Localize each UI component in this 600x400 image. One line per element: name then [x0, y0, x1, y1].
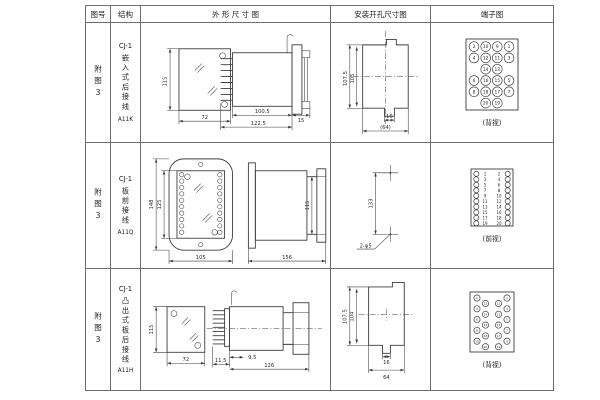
svg-text:11: 11 — [482, 199, 488, 204]
svg-text:2: 2 — [476, 296, 478, 300]
svg-text:10: 10 — [496, 193, 502, 198]
svg-text:18: 18 — [484, 333, 488, 337]
svg-text:10: 10 — [475, 339, 479, 343]
drill-holes: 133 2-φ5 — [357, 165, 399, 250]
svg-text:15: 15 — [495, 78, 501, 84]
svg-text:100.5: 100.5 — [255, 109, 270, 115]
side-view: 9.5 11.5 126 — [207, 291, 322, 372]
outline-diagram-cell: 148 125 105 115 — [141, 143, 331, 269]
header-figure-no: 图号 — [86, 6, 111, 23]
figure-no-cell: 附图3 — [86, 23, 111, 143]
svg-text:5: 5 — [506, 317, 508, 321]
glass-hatch-icon — [190, 333, 198, 341]
svg-text:72: 72 — [201, 115, 208, 121]
svg-text:20: 20 — [496, 221, 502, 226]
svg-text:17: 17 — [482, 215, 488, 220]
header-terminal: 端子图 — [431, 6, 554, 23]
svg-text:4: 4 — [473, 55, 476, 61]
terminal-zigzag: 2468101214161820111315171913579 — [474, 294, 510, 349]
svg-text:122.5: 122.5 — [251, 121, 266, 127]
svg-text:1: 1 — [508, 44, 511, 50]
svg-text:6: 6 — [473, 78, 476, 84]
svg-text:16: 16 — [386, 114, 393, 120]
terminal-view-label: (前视) — [483, 233, 502, 243]
svg-text:7: 7 — [508, 89, 511, 95]
svg-text:5: 5 — [508, 78, 511, 84]
svg-text:115: 115 — [163, 76, 169, 86]
glass-hatch-icon — [208, 86, 217, 95]
svg-text:8: 8 — [498, 188, 501, 193]
wiring-type-label: 板前接线 — [121, 187, 131, 226]
svg-text:2: 2 — [498, 171, 501, 176]
wiring-type-label: 嵌入式后接线 — [121, 54, 131, 112]
header-outline-dims: 外 形 尺 寸 图 — [141, 6, 331, 23]
svg-text:18: 18 — [496, 215, 502, 220]
terminal-diagram-cell: 2109141211314136161558181772019 (背视) — [431, 23, 554, 143]
hook-icon — [232, 291, 237, 305]
svg-text:9.5: 9.5 — [248, 355, 256, 361]
svg-text:3: 3 — [506, 306, 508, 310]
side-view: 100.5 15 122.5 — [221, 35, 310, 130]
outline-drawing-a11h: 115 72 9.5 — [141, 269, 330, 390]
terminal-drawing-a11q: 1234567891011121314151617181920 — [470, 168, 514, 227]
terminal-strip: 1234567891011121314151617181920 — [474, 171, 511, 226]
glass-hatch-icon — [203, 213, 212, 222]
svg-text:2-φ5: 2-φ5 — [360, 244, 372, 250]
svg-text:19: 19 — [482, 221, 488, 226]
svg-text:7: 7 — [506, 328, 508, 332]
svg-text:64: 64 — [383, 375, 390, 381]
svg-text:14: 14 — [484, 312, 488, 316]
svg-text:20: 20 — [484, 344, 488, 348]
svg-text:15: 15 — [482, 210, 488, 215]
figure-no-label: 附图3 — [93, 65, 104, 101]
structure-cell: CJ-1 板前接线 A11Q — [111, 143, 141, 269]
mounting-drawing-a11q: 133 2-φ5 — [331, 143, 430, 268]
terminal-drawing-a11h: 2468101214161820111315171913579 — [469, 291, 515, 353]
svg-text:14: 14 — [496, 204, 502, 209]
terminal-diagram-cell: 2468101214161820111315171913579 (背视) — [431, 269, 554, 391]
svg-text:8: 8 — [476, 328, 478, 332]
svg-text:16: 16 — [496, 210, 502, 215]
model-label: CJ-1 — [119, 175, 132, 183]
svg-text:7: 7 — [484, 188, 487, 193]
mounting-diagram-cell: 107.5 105 16 (64) — [331, 23, 431, 143]
model-label: CJ-1 — [119, 42, 132, 50]
hole-cross-marks — [382, 165, 398, 242]
svg-text:8: 8 — [473, 89, 476, 95]
svg-text:11: 11 — [495, 55, 501, 61]
svg-text:115: 115 — [149, 324, 155, 334]
terminal-diagram-cell: 1234567891011121314151617181920 (前视) — [431, 143, 554, 269]
svg-text:9: 9 — [484, 193, 487, 198]
svg-text:19: 19 — [495, 101, 501, 107]
svg-text:17: 17 — [495, 89, 501, 95]
svg-text:15: 15 — [497, 323, 501, 327]
svg-text:4: 4 — [498, 177, 501, 182]
svg-text:9: 9 — [506, 339, 508, 343]
svg-text:19: 19 — [497, 344, 501, 348]
structure-cell: CJ-1 凸出式板后接线 A11H — [111, 269, 141, 391]
svg-text:13: 13 — [482, 204, 488, 209]
terminal-view-label: (背视) — [483, 359, 502, 369]
svg-text:11.5: 11.5 — [215, 358, 227, 364]
mounting-diagram-cell: 133 2-φ5 — [331, 143, 431, 269]
svg-text:12: 12 — [484, 301, 488, 305]
svg-text:148: 148 — [149, 199, 155, 209]
svg-text:16: 16 — [484, 323, 488, 327]
svg-text:107.5: 107.5 — [343, 309, 349, 324]
outline-diagram-cell: 115 72 9.5 — [141, 269, 331, 391]
spec-table: 图号 结构 外 形 尺 寸 图 安装开孔尺寸图 端子图 附图3 CJ-1 嵌入式… — [85, 5, 554, 391]
mounting-drawing-a11k: 107.5 105 16 (64) — [331, 23, 430, 142]
document-page: 图号 结构 外 形 尺 寸 图 安装开孔尺寸图 端子图 附图3 CJ-1 嵌入式… — [0, 0, 600, 400]
front-view: 148 125 105 — [149, 159, 233, 264]
svg-text:13: 13 — [495, 67, 501, 73]
side-view: 115 156 — [248, 163, 325, 264]
svg-text:3: 3 — [484, 177, 487, 182]
svg-text:104: 104 — [350, 311, 356, 322]
svg-text:107.5: 107.5 — [343, 71, 349, 86]
svg-text:15: 15 — [298, 118, 305, 124]
svg-text:9: 9 — [496, 44, 499, 50]
svg-text:1: 1 — [484, 171, 487, 176]
mounting-diagram-cell: 107.5 104 16 64 — [331, 269, 431, 391]
structure-cell: CJ-1 嵌入式后接线 A11K — [111, 23, 141, 143]
figure-no-cell: 附图3 — [86, 269, 111, 391]
svg-text:17: 17 — [497, 333, 501, 337]
panel-cutout: 107.5 104 16 64 — [343, 282, 415, 381]
svg-text:5: 5 — [484, 182, 487, 187]
svg-text:20: 20 — [483, 101, 489, 107]
svg-text:18: 18 — [483, 89, 489, 95]
svg-text:3: 3 — [508, 55, 511, 61]
svg-text:115: 115 — [305, 200, 311, 210]
svg-text:14: 14 — [483, 67, 489, 73]
terminal-view-label: (背视) — [483, 117, 502, 127]
svg-text:12: 12 — [496, 199, 502, 204]
structure-code-label: A11K — [118, 117, 133, 123]
wiring-type-label: 凸出式板后接线 — [121, 297, 131, 365]
terminal-grid: 2109141211314136161558181772019 — [469, 42, 514, 108]
front-view: 115 72 — [163, 49, 231, 124]
svg-text:12: 12 — [483, 55, 489, 61]
header-structure: 结构 — [111, 6, 141, 23]
outline-diagram-cell: 115 72 100.5 15 — [141, 23, 331, 143]
model-label: CJ-1 — [119, 285, 132, 293]
svg-text:126: 126 — [264, 363, 275, 369]
figure-no-label: 附图3 — [93, 312, 104, 348]
mounting-drawing-a11h: 107.5 104 16 64 — [331, 269, 430, 390]
front-view: 115 72 — [149, 307, 205, 367]
outline-drawing-a11k: 115 72 100.5 15 — [141, 23, 330, 142]
glass-hatch-icon — [195, 64, 204, 73]
terminal-drawing-a11k: 2109141211314136161558181772019 — [465, 38, 519, 111]
svg-text:4: 4 — [476, 306, 478, 310]
svg-text:(64): (64) — [380, 125, 391, 131]
svg-text:156: 156 — [282, 255, 293, 261]
panel-cutout: 107.5 105 16 (64) — [343, 31, 418, 134]
glass-hatch-icon — [194, 184, 203, 193]
structure-code-label: A11H — [118, 368, 134, 374]
svg-text:6: 6 — [476, 317, 478, 321]
header-mounting-dims: 安装开孔尺寸图 — [331, 6, 431, 23]
svg-text:133: 133 — [368, 199, 374, 209]
outline-drawing-a11q: 148 125 105 115 — [141, 143, 330, 268]
terminal-pins — [213, 311, 225, 344]
svg-text:105: 105 — [196, 255, 206, 261]
figure-no-cell: 附图3 — [86, 143, 111, 269]
svg-text:2: 2 — [473, 44, 476, 50]
glass-hatch-icon — [182, 318, 190, 326]
svg-text:105: 105 — [350, 74, 356, 84]
svg-text:1: 1 — [506, 296, 508, 300]
svg-text:6: 6 — [498, 182, 501, 187]
svg-text:16: 16 — [383, 360, 390, 366]
svg-text:16: 16 — [483, 78, 489, 84]
svg-text:10: 10 — [483, 44, 489, 50]
svg-text:72: 72 — [183, 357, 190, 363]
svg-text:13: 13 — [497, 312, 501, 316]
svg-text:11: 11 — [497, 301, 501, 305]
structure-code-label: A11Q — [118, 230, 134, 236]
svg-text:125: 125 — [157, 199, 163, 209]
figure-no-label: 附图3 — [93, 188, 104, 224]
